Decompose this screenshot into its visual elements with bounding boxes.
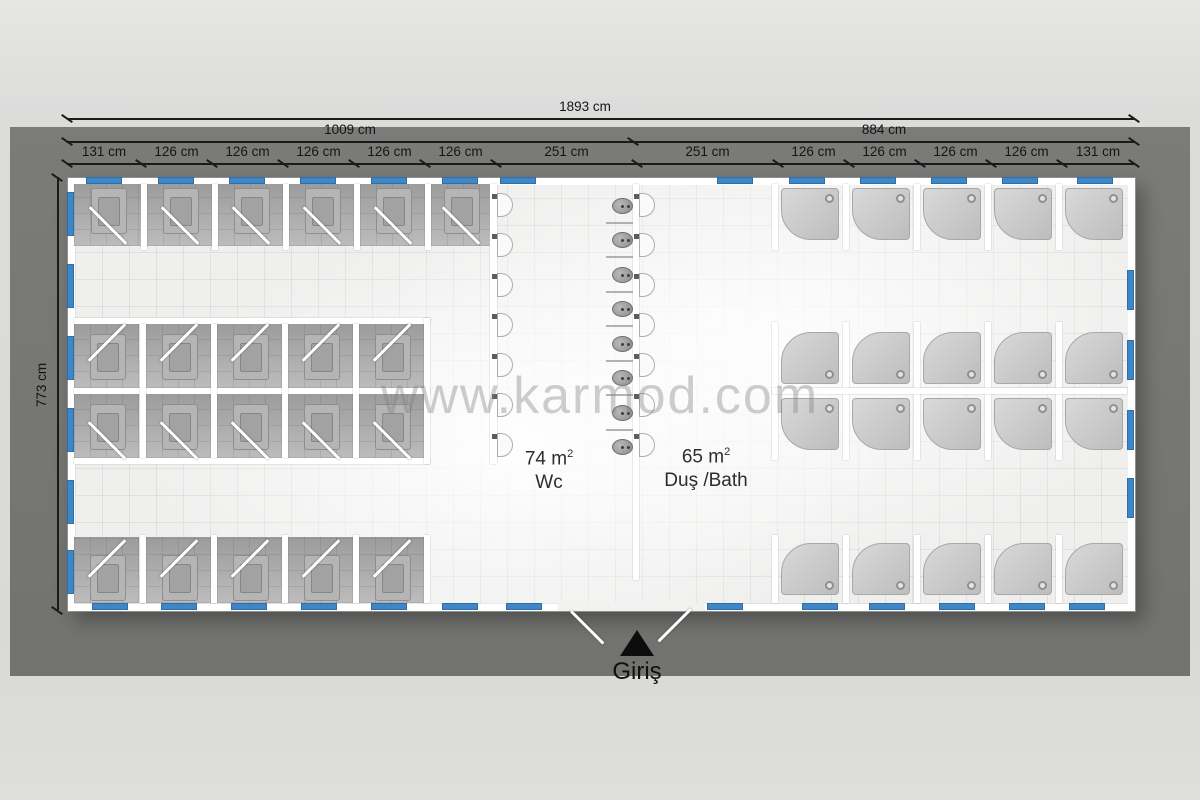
room-label-wc: 74 m2 Wc	[489, 442, 609, 495]
dimension-tick	[1128, 114, 1140, 123]
entrance-label: Giriş	[577, 658, 697, 686]
floor-plan-stage: 1893 cm1009 cm884 cm131 cm126 cm126 cm12…	[0, 0, 1200, 800]
dimension-label: 1893 cm	[540, 99, 630, 115]
room-label-bath: 65 m2 Duş /Bath	[641, 440, 771, 493]
watermark: www.karmod.com	[270, 366, 930, 426]
dimension-line	[67, 118, 1134, 120]
room-area-bath: 65 m2	[641, 440, 771, 469]
dimension-tick	[61, 114, 73, 123]
room-name-wc: Wc	[489, 471, 609, 495]
room-name-bath: Duş /Bath	[641, 469, 771, 493]
room-area-wc: 74 m2	[489, 442, 609, 471]
entrance-arrow-icon	[620, 630, 654, 656]
